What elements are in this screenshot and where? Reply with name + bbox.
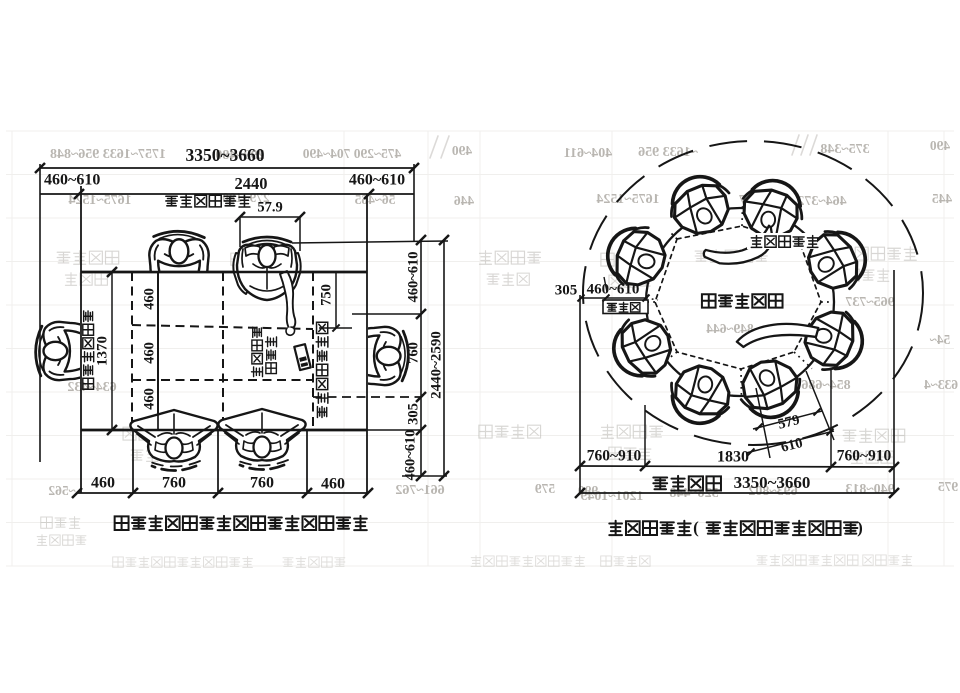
svg-text:940~813: 940~813: [845, 482, 894, 497]
svg-text:975: 975: [938, 479, 959, 494]
svg-text:475~290 704~490: 475~290 704~490: [303, 146, 402, 161]
svg-text:460~610: 460~610: [402, 429, 418, 480]
svg-text:760: 760: [162, 475, 186, 492]
svg-text:305: 305: [405, 403, 421, 425]
svg-text:~562: ~562: [48, 483, 76, 498]
svg-text:460~610: 460~610: [349, 172, 405, 189]
svg-text:760~910: 760~910: [587, 448, 642, 465]
svg-text:1370: 1370: [94, 336, 110, 366]
svg-text:54~: 54~: [930, 332, 951, 347]
svg-text:634~432: 634~432: [67, 380, 116, 395]
svg-text:1830: 1830: [717, 449, 749, 466]
svg-text:1201~1049: 1201~1049: [580, 489, 643, 504]
svg-text:633~4: 633~4: [924, 377, 958, 392]
svg-text:404~611: 404~611: [564, 146, 613, 161]
svg-text:3350~3660: 3350~3660: [185, 145, 264, 165]
svg-text:464~372: 464~372: [797, 194, 846, 209]
svg-text:(: (: [693, 518, 699, 537]
svg-text:460~610: 460~610: [44, 172, 100, 189]
svg-text:460: 460: [321, 476, 345, 493]
svg-text:854~686: 854~686: [801, 378, 850, 393]
svg-text:446: 446: [454, 193, 475, 208]
svg-text:750: 750: [318, 284, 334, 306]
svg-text:2440: 2440: [235, 174, 268, 193]
svg-text:579: 579: [535, 481, 556, 496]
svg-text:460~610: 460~610: [405, 251, 421, 302]
svg-text:460: 460: [141, 288, 157, 310]
svg-text:3350~3660: 3350~3660: [734, 473, 811, 492]
svg-text:490: 490: [452, 143, 473, 158]
svg-text:445: 445: [932, 191, 953, 206]
svg-text:661~762: 661~762: [395, 483, 444, 498]
svg-text:460~610: 460~610: [587, 281, 640, 297]
svg-text:760~910: 760~910: [837, 448, 892, 465]
svg-text:460: 460: [141, 388, 157, 410]
svg-text:965~737: 965~737: [845, 295, 894, 310]
svg-text:460: 460: [141, 342, 157, 364]
svg-text:): ): [857, 518, 863, 537]
svg-text:375~348: 375~348: [820, 142, 869, 157]
svg-text:2440~2590: 2440~2590: [428, 331, 444, 399]
svg-text:1675~1524: 1675~1524: [596, 192, 659, 207]
svg-text:760: 760: [250, 475, 274, 492]
svg-text:1757~1633 956~848: 1757~1633 956~848: [50, 147, 166, 162]
svg-text:57.9: 57.9: [257, 199, 282, 215]
svg-text:460: 460: [91, 475, 115, 492]
svg-text:305: 305: [555, 282, 578, 298]
svg-text:490: 490: [930, 138, 951, 153]
